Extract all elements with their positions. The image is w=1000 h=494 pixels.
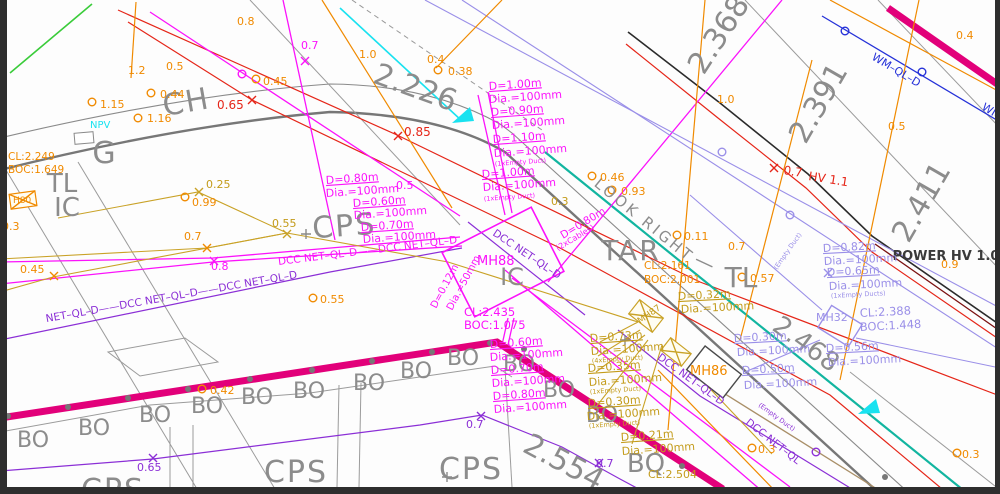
map-label: BO	[353, 371, 385, 396]
map-label: G	[92, 136, 115, 171]
map-label: H80	[13, 196, 31, 206]
viewport-edge-right	[995, 0, 1000, 494]
map-label: 0.5	[888, 120, 906, 133]
viewport-edge-bottom	[0, 487, 1000, 494]
map-label: BOC:1.075	[464, 318, 526, 332]
map-label: 0.3	[551, 195, 569, 208]
survey-point-icon	[434, 66, 442, 74]
map-label: 0.44	[160, 88, 185, 101]
map-label: CPS	[264, 455, 328, 490]
map-label: 0.4	[427, 53, 445, 66]
map-label: BO	[78, 416, 110, 441]
map-label: BO	[400, 359, 432, 384]
map-label: MH32	[816, 311, 848, 324]
fence-dot-icon	[309, 367, 315, 373]
map-label: 1.2	[128, 64, 146, 77]
map-label: CL:2.161	[644, 260, 691, 272]
map-label: BOC:2.001	[644, 274, 700, 286]
map-label: 0.7	[596, 457, 614, 470]
map-label: BO	[241, 385, 273, 410]
survey-point-icon	[588, 172, 596, 180]
survey-point-icon	[718, 148, 726, 156]
map-label: BO	[17, 428, 49, 453]
survey-point-icon	[748, 444, 756, 452]
map-label: BOC:1.649	[8, 164, 64, 176]
map-label: 0.7	[184, 230, 202, 243]
map-label: 0.7	[783, 163, 804, 180]
fence-dot-icon	[882, 474, 888, 480]
map-label: 0.5	[166, 60, 184, 73]
map-label: 0.25	[206, 178, 231, 191]
map-label: 1.15	[100, 98, 125, 111]
map-label: (1xEmpty Ducts)	[831, 289, 886, 300]
map-label: MH88	[477, 254, 515, 269]
map-label: CPS	[439, 452, 503, 487]
manhole-box	[74, 132, 94, 145]
map-label: 0.55	[320, 293, 345, 306]
cross-marker-icon	[770, 164, 778, 172]
fence-dot-icon	[185, 386, 191, 392]
map-label: 0.45	[263, 75, 288, 88]
survey-point-icon	[918, 68, 926, 76]
annotations-layer: CHGTLICCPS2.226TARTL—2.3912.4112.3682.46…	[2, 0, 1000, 494]
map-label: BO	[191, 394, 223, 419]
fence-dot-icon	[65, 404, 71, 410]
map-label: CL:2.249	[8, 151, 55, 163]
survey-point-icon	[147, 89, 155, 97]
cad-viewport[interactable]: CHGTLICCPS2.226TARTL—2.3912.4112.3682.46…	[0, 0, 1000, 494]
map-label: 1.0	[717, 93, 735, 106]
map-label: 0.55	[272, 217, 297, 230]
map-label: 2.411	[885, 156, 958, 248]
map-label: 0.7	[301, 39, 319, 52]
survey-point-icon	[88, 98, 96, 106]
fence-dot-icon	[125, 395, 131, 401]
map-label: (Empty Duct)	[772, 231, 803, 271]
map-label: BO	[293, 379, 325, 404]
utility-plan-canvas[interactable]: CHGTLICCPS2.226TARTL—2.3912.4112.3682.46…	[0, 0, 1000, 494]
survey-point-icon	[309, 294, 317, 302]
map-label: BOC:1.448	[859, 317, 921, 334]
map-label: D=0.56m	[825, 339, 879, 355]
map-label: 0.7	[728, 240, 746, 253]
map-label: CL:2.504	[648, 468, 697, 481]
cross-marker-icon	[248, 96, 256, 104]
fence-dot-icon	[247, 376, 253, 382]
map-label: IC	[54, 193, 80, 223]
map-label: HV 1.1	[808, 169, 850, 189]
map-label: 0.8	[237, 15, 255, 28]
map-label: 0.45	[20, 263, 45, 276]
map-label: 0.46	[600, 171, 625, 184]
map-label: 0.85	[404, 125, 431, 139]
map-label: Dia.=100mm	[827, 352, 901, 369]
fence-dot-icon	[429, 349, 435, 355]
map-label: D=0.50m	[741, 361, 795, 377]
map-label: 0.99	[192, 196, 217, 209]
map-label: CL:2.435	[464, 305, 515, 319]
map-label: 0.57	[750, 272, 775, 285]
map-label: 1.0	[359, 48, 377, 61]
cross-marker-icon	[394, 132, 402, 140]
viewport-edge-left	[0, 0, 7, 494]
map-label: 0.5	[396, 179, 414, 192]
map-label: 2.368	[681, 0, 757, 80]
map-label: 0.11	[684, 230, 709, 243]
map-label: NPV	[90, 120, 111, 131]
map-label: 0.65	[137, 461, 162, 474]
map-label: 0.4	[956, 29, 974, 42]
map-label: 0.65	[217, 98, 244, 112]
map-label: BO	[447, 346, 479, 371]
map-label: 0.7	[466, 418, 484, 431]
map-label: Dia.=100mm	[743, 375, 817, 392]
map-label: 0.3	[962, 448, 980, 461]
map-label: D=0.30m	[733, 329, 787, 345]
map-label: 0.9	[941, 258, 959, 271]
map-label: D=0.65m	[826, 263, 880, 279]
map-label: 0.42	[210, 384, 235, 397]
map-label: 0.93	[621, 185, 646, 198]
fence-dot-icon	[369, 358, 375, 364]
map-label: 0.8	[211, 260, 229, 273]
map-label: 0.38	[448, 65, 473, 78]
map-label: WM–QL–D	[869, 50, 923, 89]
survey-point-icon	[134, 114, 142, 122]
map-label: BO	[139, 403, 171, 428]
map-label: 2.391	[782, 57, 855, 149]
map-label: 1.16	[147, 112, 172, 125]
